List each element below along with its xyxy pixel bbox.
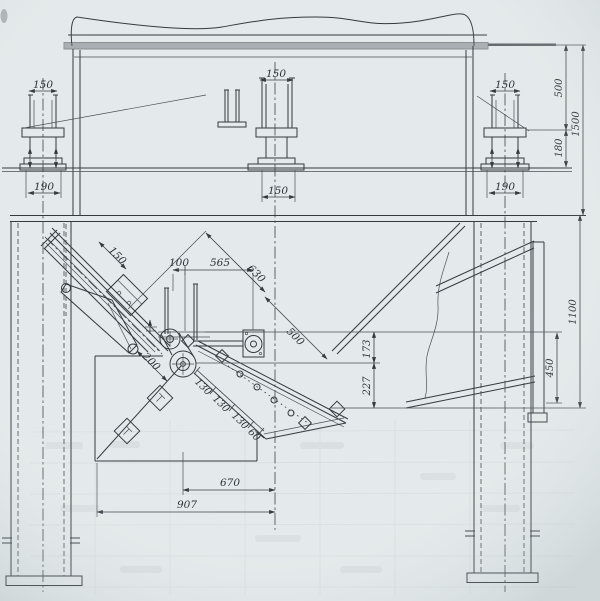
scanned-drawing-page: 150 190 150 150 150 190 500 180 [0, 0, 600, 601]
photo-vignette [0, 0, 600, 601]
technical-drawing: 150 190 150 150 150 190 500 180 [0, 0, 600, 601]
